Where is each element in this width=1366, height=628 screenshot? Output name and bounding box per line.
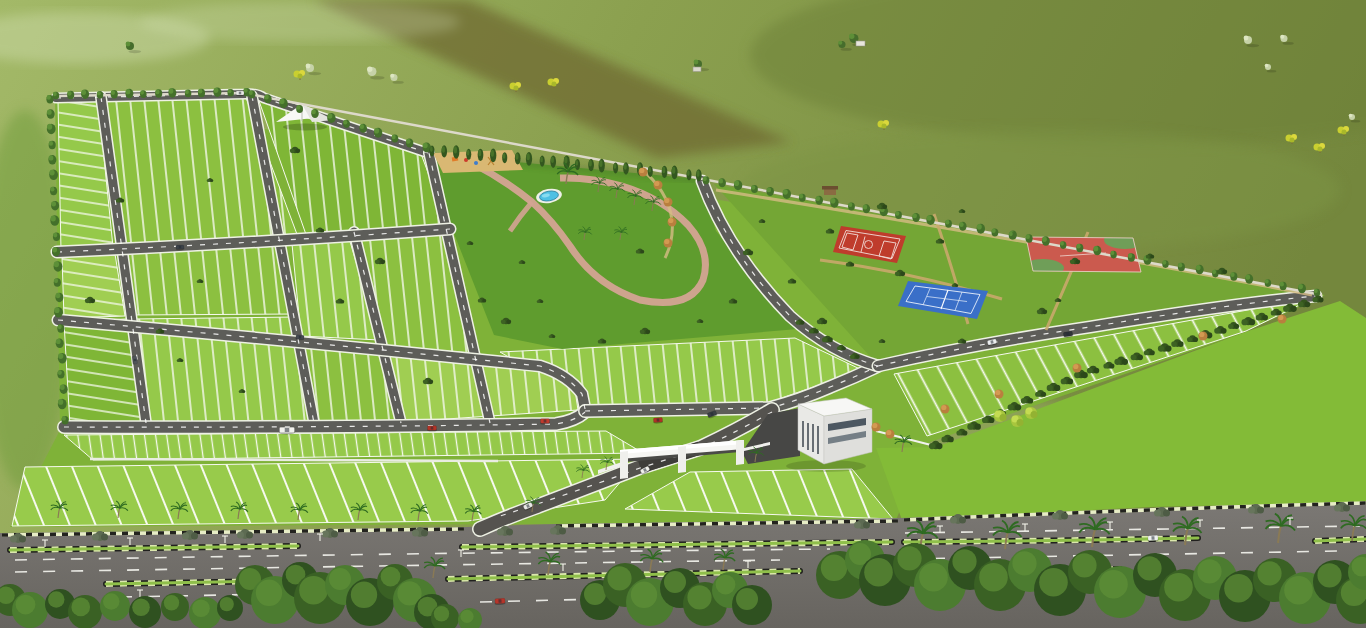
top-boundary-tree bbox=[734, 180, 742, 190]
tree-crown bbox=[1349, 114, 1353, 118]
park-boundary-tree bbox=[623, 162, 629, 174]
tree-crown bbox=[306, 64, 311, 69]
tree-crown bbox=[1244, 36, 1249, 41]
canopy-highlight bbox=[1164, 573, 1193, 602]
vehicle-windshield bbox=[285, 428, 290, 432]
top-boundary-tree bbox=[125, 89, 133, 99]
white-car bbox=[1147, 535, 1158, 542]
gate-pillar bbox=[736, 440, 744, 465]
canopy-highlight bbox=[821, 555, 847, 581]
tree-shadow bbox=[1267, 70, 1277, 72]
tree-shadow bbox=[1283, 42, 1294, 45]
canopy-highlight bbox=[897, 546, 921, 570]
top-boundary-tree bbox=[53, 92, 59, 100]
left-boundary-tree bbox=[58, 353, 67, 364]
gate-pillar bbox=[678, 446, 686, 473]
top-boundary-tree bbox=[81, 89, 89, 99]
left-boundary-tree bbox=[47, 124, 56, 134]
park-boundary-tree bbox=[490, 149, 496, 163]
canopy-highlight bbox=[864, 558, 893, 587]
top-boundary-tree bbox=[311, 109, 319, 118]
left-boundary-tree bbox=[57, 370, 64, 379]
left-boundary-tree bbox=[48, 155, 56, 165]
canopy-highlight bbox=[1039, 568, 1068, 597]
canopy-highlight bbox=[434, 606, 449, 621]
tree-crown bbox=[838, 41, 842, 45]
dark-car bbox=[176, 245, 185, 251]
left-boundary-tree bbox=[50, 187, 57, 196]
park-boundary-tree bbox=[441, 145, 447, 157]
canopy-highlight bbox=[164, 595, 179, 610]
top-boundary-tree bbox=[926, 215, 934, 225]
top-boundary-tree bbox=[959, 222, 967, 231]
canopy-highlight bbox=[1257, 561, 1281, 585]
left-boundary-tree bbox=[60, 384, 68, 394]
top-boundary-tree bbox=[815, 196, 823, 205]
top-boundary-tree bbox=[977, 224, 985, 234]
top-boundary-tree bbox=[751, 185, 758, 193]
top-boundary-tree bbox=[783, 189, 791, 199]
left-boundary-tree bbox=[52, 247, 60, 257]
tree-shadow bbox=[393, 81, 404, 84]
top-boundary-tree bbox=[343, 120, 350, 128]
gazebo-hut bbox=[822, 186, 838, 195]
canopy-highlight bbox=[631, 582, 657, 608]
top-boundary-tree bbox=[766, 187, 774, 196]
canopy-highlight bbox=[1099, 570, 1128, 599]
top-boundary-tree bbox=[1026, 234, 1033, 243]
canopy-highlight bbox=[979, 563, 1008, 592]
vehicle-windshield bbox=[179, 246, 181, 249]
top-boundary-tree bbox=[1280, 282, 1287, 291]
left-boundary-tree bbox=[62, 416, 69, 425]
top-boundary-tree bbox=[1009, 232, 1015, 240]
top-boundary-tree bbox=[1128, 253, 1135, 261]
canopy-highlight bbox=[1224, 574, 1253, 603]
canopy-highlight bbox=[1197, 559, 1221, 583]
left-boundary-tree bbox=[50, 215, 59, 226]
playground-equipment bbox=[474, 161, 478, 165]
park-boundary-tree bbox=[515, 152, 521, 164]
canopy-highlight bbox=[256, 580, 282, 606]
canopy-highlight bbox=[607, 566, 631, 590]
top-boundary-tree bbox=[406, 139, 414, 148]
top-boundary-tree bbox=[227, 89, 233, 97]
tree-crown bbox=[367, 67, 372, 72]
left-boundary-tree bbox=[55, 293, 63, 303]
vehicle-windshield bbox=[431, 426, 434, 429]
top-boundary-tree bbox=[912, 213, 920, 222]
top-boundary-tree bbox=[1178, 263, 1185, 272]
top-boundary-tree bbox=[848, 202, 855, 210]
left-boundary-tree bbox=[53, 233, 60, 242]
park-boundary-tree bbox=[453, 145, 459, 159]
tree-crown bbox=[390, 74, 394, 78]
top-boundary-tree bbox=[168, 88, 176, 98]
park-boundary-tree bbox=[429, 145, 434, 156]
canopy-highlight bbox=[71, 598, 90, 617]
canopy-highlight bbox=[48, 591, 65, 608]
park-boundary-tree bbox=[671, 166, 677, 180]
top-boundary-tree bbox=[863, 204, 871, 213]
park-boundary-tree bbox=[599, 159, 605, 173]
top-boundary-tree bbox=[1076, 244, 1083, 253]
top-boundary-tree bbox=[264, 94, 272, 103]
canopy-highlight bbox=[919, 563, 948, 592]
park-boundary-tree bbox=[550, 156, 556, 168]
park-boundary-tree bbox=[613, 162, 618, 173]
vehicle-windshield bbox=[544, 419, 547, 422]
multipurpose-court bbox=[1022, 231, 1146, 277]
top-boundary-tree bbox=[391, 135, 398, 143]
top-boundary-tree bbox=[799, 194, 806, 202]
park-boundary-tree bbox=[526, 152, 532, 166]
farm-hut bbox=[693, 67, 701, 72]
park-boundary-tree bbox=[696, 169, 702, 181]
white-car bbox=[236, 91, 245, 96]
left-boundary-tree bbox=[46, 95, 53, 104]
orange-bush bbox=[1278, 315, 1287, 324]
left-boundary-tree bbox=[51, 201, 59, 211]
park-boundary-tree bbox=[466, 149, 471, 160]
median-strip bbox=[10, 546, 298, 550]
park-boundary-tree bbox=[662, 166, 668, 178]
orange-bush bbox=[872, 423, 881, 432]
top-boundary-tree bbox=[895, 211, 902, 219]
left-boundary-tree bbox=[57, 324, 64, 333]
mist-patch bbox=[140, 2, 460, 42]
vehicle-windshield bbox=[239, 92, 241, 95]
top-boundary-tree bbox=[296, 105, 303, 113]
top-boundary-tree bbox=[1265, 279, 1271, 287]
top-boundary-tree bbox=[1042, 236, 1050, 246]
canopy-highlight bbox=[1317, 563, 1341, 587]
orange-bush bbox=[995, 390, 1004, 399]
median-strip bbox=[1315, 539, 1366, 541]
orange-bush bbox=[1073, 364, 1082, 373]
top-boundary-tree bbox=[140, 90, 146, 98]
top-boundary-tree bbox=[1230, 272, 1237, 281]
canopy-highlight bbox=[103, 593, 120, 610]
top-boundary-tree bbox=[1314, 289, 1320, 297]
plot-block bbox=[122, 246, 297, 315]
top-boundary-tree bbox=[359, 124, 367, 133]
tree-shadow bbox=[1351, 120, 1361, 122]
tree-crown bbox=[849, 34, 854, 39]
left-boundary-tree bbox=[58, 399, 67, 410]
top-boundary-tree bbox=[1093, 246, 1101, 256]
left-boundary-tree bbox=[54, 278, 61, 287]
orange-bush bbox=[668, 218, 677, 227]
park-boundary-tree bbox=[588, 159, 594, 171]
canopy-highlight bbox=[329, 568, 351, 590]
orange-bush bbox=[639, 168, 648, 177]
township-layout-render bbox=[0, 0, 1366, 628]
top-boundary-tree bbox=[198, 89, 205, 98]
canopy-highlight bbox=[664, 571, 686, 593]
tree-shadow bbox=[308, 72, 321, 75]
top-boundary-tree bbox=[945, 220, 952, 228]
orange-bush bbox=[664, 198, 673, 207]
top-boundary-tree bbox=[97, 91, 103, 99]
top-boundary-tree bbox=[213, 87, 221, 97]
left-boundary-tree bbox=[47, 109, 55, 119]
canopy-highlight bbox=[952, 549, 976, 573]
orange-bush bbox=[941, 405, 950, 414]
canopy-highlight bbox=[299, 576, 328, 605]
canopy-shadow bbox=[283, 124, 327, 131]
left-boundary-tree bbox=[54, 307, 63, 318]
canopy-highlight bbox=[1284, 576, 1313, 605]
tree-shadow bbox=[1246, 44, 1259, 47]
tree-crown bbox=[1265, 64, 1269, 68]
tree-crown bbox=[1280, 35, 1284, 39]
left-boundary-tree bbox=[56, 339, 64, 349]
orange-bush bbox=[664, 239, 673, 248]
tree-shadow bbox=[128, 50, 141, 53]
top-boundary-tree bbox=[718, 178, 726, 187]
tree-crown bbox=[694, 60, 699, 65]
vehicle-windshield bbox=[1151, 536, 1154, 540]
red-car bbox=[653, 417, 663, 423]
canopy-highlight bbox=[192, 599, 210, 617]
top-boundary-tree bbox=[155, 89, 162, 98]
vehicle-windshield bbox=[299, 336, 302, 339]
top-boundary-tree bbox=[1298, 284, 1306, 294]
top-boundary-tree bbox=[185, 90, 191, 98]
canopy-highlight bbox=[687, 585, 711, 609]
top-boundary-tree bbox=[1110, 251, 1116, 259]
orange-bush bbox=[1199, 332, 1208, 341]
park-boundary-tree bbox=[540, 156, 545, 167]
canopy-highlight bbox=[1012, 551, 1036, 575]
top-boundary-tree bbox=[1196, 265, 1204, 275]
site-render-canvas bbox=[0, 0, 1366, 628]
canopy-highlight bbox=[351, 582, 377, 608]
tree-shadow bbox=[841, 48, 852, 51]
canopy-highlight bbox=[460, 610, 473, 623]
canopy-highlight bbox=[736, 588, 758, 610]
left-boundary-tree bbox=[49, 169, 58, 180]
vehicle-windshield bbox=[134, 359, 137, 362]
park-boundary-tree bbox=[648, 166, 653, 177]
top-boundary-tree bbox=[1162, 260, 1168, 268]
canopy-highlight bbox=[716, 575, 736, 595]
top-boundary-tree bbox=[111, 90, 118, 99]
canopy-highlight bbox=[132, 598, 150, 616]
top-boundary-tree bbox=[991, 228, 998, 236]
red-car bbox=[494, 598, 505, 605]
white-bus bbox=[279, 427, 296, 434]
red-car bbox=[427, 426, 437, 432]
canopy-highlight bbox=[220, 597, 234, 611]
top-boundary-tree bbox=[327, 113, 335, 123]
top-boundary-tree bbox=[279, 98, 287, 108]
red-car bbox=[540, 419, 550, 425]
tree-crown bbox=[126, 42, 131, 47]
vehicle-windshield bbox=[498, 599, 501, 603]
canopy-highlight bbox=[381, 567, 401, 587]
vehicle-windshield bbox=[1066, 332, 1069, 336]
top-boundary-tree bbox=[703, 176, 710, 184]
top-boundary-tree bbox=[374, 128, 382, 138]
top-boundary-tree bbox=[1060, 241, 1066, 249]
park-boundary-tree bbox=[686, 169, 691, 180]
vehicle-windshield bbox=[657, 418, 660, 421]
park-boundary-tree bbox=[478, 149, 484, 161]
orange-bush bbox=[886, 430, 895, 439]
canopy-highlight bbox=[16, 595, 36, 615]
farm-hut bbox=[856, 41, 865, 46]
top-boundary-tree bbox=[249, 90, 256, 98]
plot-block bbox=[62, 254, 125, 318]
left-boundary-tree bbox=[49, 141, 56, 150]
dark-car bbox=[295, 335, 304, 341]
canopy-highlight bbox=[584, 583, 606, 605]
canopy-highlight bbox=[1137, 556, 1161, 580]
orange-bush bbox=[654, 181, 663, 190]
top-boundary-tree bbox=[67, 91, 74, 100]
tree-shadow bbox=[370, 76, 384, 80]
hut-roof bbox=[822, 186, 838, 190]
top-boundary-tree bbox=[830, 198, 838, 208]
left-boundary-tree bbox=[54, 261, 63, 272]
top-boundary-tree bbox=[1245, 274, 1253, 284]
canopy-highlight bbox=[1072, 553, 1096, 577]
park-boundary-tree bbox=[502, 152, 507, 163]
